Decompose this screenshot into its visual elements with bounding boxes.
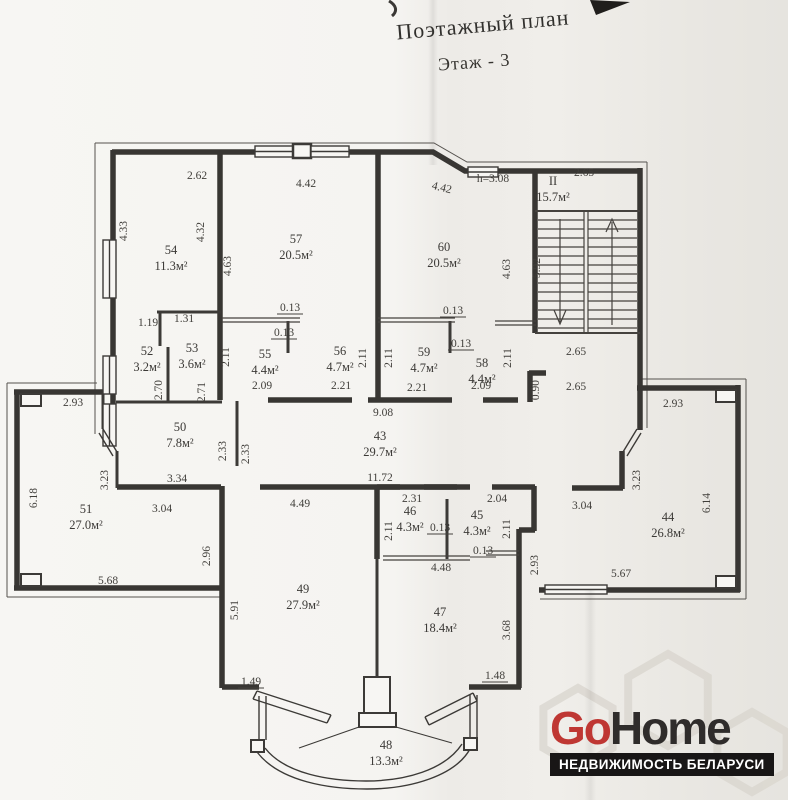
room-number-label: 45 [471,508,484,522]
room-number-label: 43 [374,429,387,443]
dimension-label: 0.90 [530,380,542,400]
room-number-label: 59 [418,345,431,359]
room-number-label: 56 [334,344,347,358]
dimension-label: 1.49 [241,676,261,688]
room-area-label: 4.3м² [463,524,491,538]
dimension-label: 4.49 [290,498,310,510]
dimension-label: 0.13 [280,302,300,314]
dimension-label: 2.11 [501,519,513,539]
floor-plan-drawing: 2.624.424.42h=3.082.654.334.324.634.63-5… [0,0,788,800]
room-area-label: 7.8м² [166,436,194,450]
room-number-label: 44 [662,510,675,524]
dimension-label: 2.21 [331,380,351,392]
dimension-label: 3.34 [167,473,187,485]
room-area-label: 4.7м² [410,361,438,375]
dimension-label: 2.11 [383,348,395,368]
dimension-label: 1.31 [174,313,194,325]
dimension-label: 2.65 [566,381,586,393]
dimension-label: 4.48 [431,562,451,574]
dimension-label: 2.70 [153,380,165,400]
dimension-label: 3.23 [631,470,643,490]
room-area-label: 4.7м² [326,360,354,374]
room-number-label: 57 [290,232,303,246]
room-number-label: 58 [476,356,489,370]
dimension-label: 0.13 [430,522,450,534]
dimension-label: 2.11 [220,347,232,367]
dimension-label: 3.68 [501,620,513,640]
dimension-label: 2.65 [574,167,594,179]
dimension-label: 2.93 [529,555,541,575]
room-number-label: 49 [297,582,310,596]
room-number-label: 60 [438,240,451,254]
dimension-label: 2.65 [566,346,586,358]
dimension-label: 11.72 [367,472,393,484]
room-number-label: 50 [174,420,187,434]
corner-window-right [623,429,641,456]
dimension-label: 5.68 [98,575,118,587]
dimension-label: 2.93 [63,397,83,409]
room-number-label: 55 [259,347,272,361]
dimension-label: 2.21 [407,382,427,394]
dimension-label: 2.11 [357,348,369,368]
dimension-label: 3.04 [152,503,172,515]
dimension-label: 2.04 [487,493,507,505]
dimension-label: 4.33 [118,221,130,241]
room-area-label: 26.8м² [651,526,685,540]
bay-window [251,677,477,789]
dimension-label: 6.18 [28,488,40,508]
dimension-label: 5.67 [611,568,631,580]
room-area-label: 20.5м² [427,256,461,270]
room-area-label: 15.7м² [536,190,570,204]
dimension-label: 6.14 [701,493,713,513]
dimension-label: 1.19 [138,317,158,329]
dimension-label: 2.71 [196,382,208,402]
room-area-label: 11.3м² [154,259,187,273]
gohome-logo: GoHome НЕДВИЖИМОСТЬ БЕЛАРУСИ [550,704,774,776]
room-area-label: 4.4м² [468,372,496,386]
room-area-label: 18.4м² [423,621,457,635]
room-area-label: 27.9м² [286,598,320,612]
dimension-label: 2.11 [383,521,395,541]
gohome-brand: GoHome [550,704,774,752]
room-number-label: 52 [141,344,154,358]
dimension-label: 2.33 [217,441,229,461]
room-area-label: 27.0м² [69,518,103,532]
dimension-label: 2.09 [252,380,272,392]
dimension-label: 3.23 [99,470,111,490]
room-area-label: 3.2м² [133,360,161,374]
dimension-label: 0.13 [473,545,493,557]
dimension-label: 4.32 [195,222,207,242]
room-area-label: 4.3м² [396,520,424,534]
room-area-label: 13.3м² [369,754,403,768]
room-number-label: 46 [404,504,417,518]
dimension-label: 0.13 [274,327,294,339]
room-number-label: 47 [434,605,447,619]
room-number-label: 48 [380,738,393,752]
dimension-label: -5.92- [531,254,543,282]
brand-go: Go [550,702,610,754]
dimension-label: 3.04 [572,500,592,512]
dimension-label: 2.11 [502,348,514,368]
room-area-label: 3.6м² [178,357,206,371]
bay-angled-window-right [425,693,477,725]
brand-home: Home [610,702,730,754]
stairs-down-arrow [554,219,566,324]
dimension-label: 2.96 [201,546,213,566]
gohome-tagline: НЕДВИЖИМОСТЬ БЕЛАРУСИ [550,753,774,776]
dimension-label: 5.91 [229,600,241,620]
bay-inner-curve [265,744,462,781]
vent-shaft [364,677,390,714]
room-number-label: II [549,174,557,188]
bay-outer-curve [257,749,470,789]
room-number-label: 54 [165,243,178,257]
dimension-label: 0.13 [451,338,471,350]
scan-artifacts [389,0,630,16]
dimension-label: 4.63 [222,256,234,276]
scanned-floor-plan-page: Поэтажный план Этаж - 3 [0,0,788,800]
wall-pillar [293,144,311,158]
door-swing-lines [299,727,452,748]
dimension-label: 1.48 [485,670,505,682]
dimension-label: 2.33 [240,444,252,464]
staircase [535,211,640,333]
dimension-label: 4.42 [431,180,454,197]
dimension-label: 4.63 [501,259,513,279]
dimension-label: 4.42 [296,178,316,190]
room-area-label: 29.7м² [363,445,397,459]
dimension-label: 0.13 [443,305,463,317]
bay-angled-window-left [253,691,331,723]
dimension-label: 2.93 [663,398,683,410]
room-number-label: 51 [80,502,93,516]
stairs-up-arrow [606,219,618,325]
dimension-label: 9.08 [373,407,393,419]
room-number-label: 53 [186,341,199,355]
dimension-label: 2.62 [187,170,207,182]
dimension-label: h=3.08 [477,173,510,185]
room-area-label: 20.5м² [279,248,313,262]
room-area-label: 4.4м² [251,363,279,377]
